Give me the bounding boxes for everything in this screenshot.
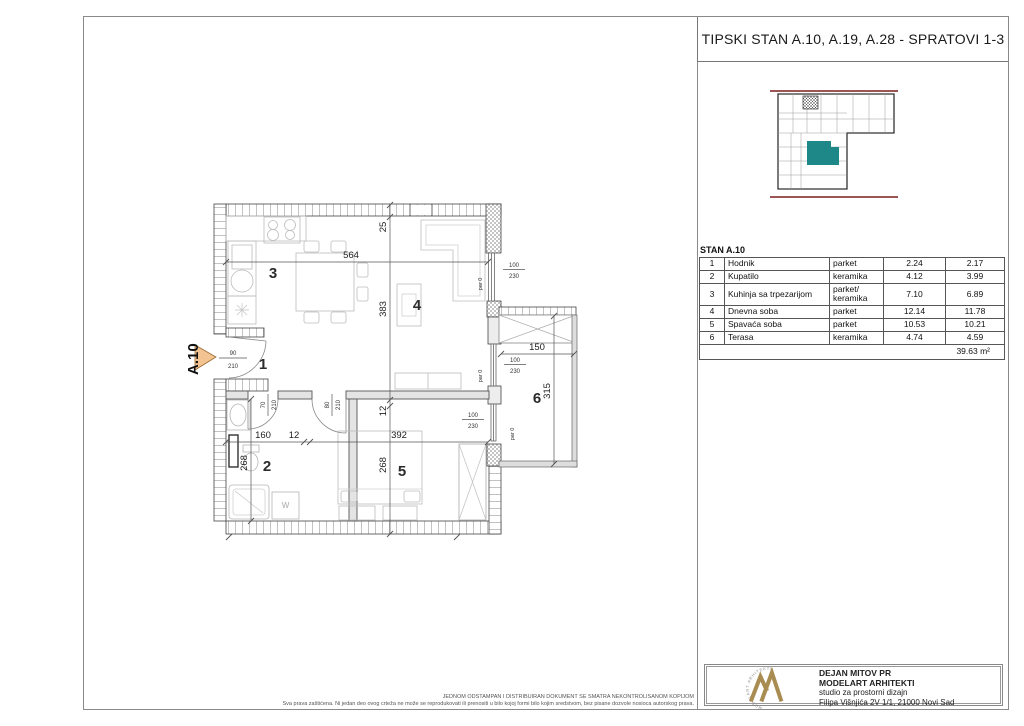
- room-area2: 6.89: [946, 284, 1005, 306]
- table-row: 2 Kupatilo keramika 4.12 3.99: [700, 271, 1005, 284]
- svg-text:210: 210: [228, 364, 239, 370]
- table-total-row: 39.63 m²: [700, 344, 1005, 359]
- room-name: Hodnik: [725, 258, 830, 271]
- architect-block: MODELART ARHITEKTI DEJAN MITOV PR MODELA…: [704, 664, 1003, 706]
- svg-text:par 0: par 0: [510, 428, 516, 441]
- svg-text:25: 25: [378, 222, 389, 233]
- interior-walls: [226, 391, 489, 521]
- dimension-texts: 564 160 12 392 150 25 383 12 268 268 315…: [228, 222, 553, 473]
- key-plan: [756, 81, 921, 211]
- room-area: 4.74: [884, 331, 946, 344]
- room-name: Spavaća soba: [725, 318, 830, 331]
- furniture-living: [395, 220, 485, 389]
- svg-text:230: 230: [468, 424, 479, 430]
- furniture-kitchen: [226, 216, 368, 324]
- room-num: 6: [700, 331, 725, 344]
- svg-text:315: 315: [542, 383, 553, 399]
- svg-text:268: 268: [378, 457, 389, 473]
- room-area2: 3.99: [946, 271, 1005, 284]
- room-floor: keramika: [830, 331, 884, 344]
- svg-text:383: 383: [378, 301, 389, 317]
- svg-text:150: 150: [529, 342, 545, 353]
- terrace-structure: [499, 307, 577, 467]
- areas-table: 1 Hodnik parket 2.24 2.17 2 Kupatilo ker…: [699, 257, 1005, 360]
- svg-text:90: 90: [230, 351, 237, 357]
- svg-text:par 0: par 0: [478, 278, 484, 291]
- washer-label: W: [282, 501, 290, 510]
- room-area2: 11.78: [946, 305, 1005, 318]
- room-name: Terasa: [725, 331, 830, 344]
- stair-core: [803, 96, 818, 109]
- table-row: 6 Terasa keramika 4.74 4.59: [700, 331, 1005, 344]
- room-name: Dnevna soba: [725, 305, 830, 318]
- firm-tagline: studio za prostorni dizajn: [819, 688, 955, 698]
- svg-text:268: 268: [239, 455, 250, 471]
- svg-text:210: 210: [336, 399, 342, 410]
- room-label-kitchen: 3: [269, 265, 277, 282]
- svg-text:70: 70: [261, 401, 267, 408]
- floor-plan-area: W 564 160 12 392 150: [84, 17, 698, 709]
- room-num: 4: [700, 305, 725, 318]
- room-area2: 4.59: [946, 331, 1005, 344]
- room-area: 4.12: [884, 271, 946, 284]
- svg-text:100: 100: [509, 263, 520, 269]
- disclaimer-line2: Sva prava zaštićena. Ni jedan deo ovog c…: [84, 701, 694, 708]
- firm-studio: MODELART ARHITEKTI: [819, 679, 955, 689]
- svg-text:100: 100: [510, 358, 521, 364]
- room-num: 5: [700, 318, 725, 331]
- room-label-living: 4: [413, 297, 422, 314]
- room-num: 3: [700, 284, 725, 306]
- disclaimer-line1: JEDNOM ODSTAMPAN I DISTRIBUIRAN DOKUMENT…: [84, 694, 694, 701]
- room-floor: parket: [830, 305, 884, 318]
- sheet-frame: W 564 160 12 392 150: [83, 16, 1009, 710]
- room-area: 2.24: [884, 258, 946, 271]
- svg-text:12: 12: [378, 406, 389, 417]
- table-title: STAN A.10: [700, 245, 745, 255]
- architect-block-inner: MODELART ARHITEKTI DEJAN MITOV PR MODELA…: [706, 666, 1001, 704]
- svg-text:100: 100: [468, 413, 479, 419]
- room-num: 2: [700, 271, 725, 284]
- firm-address: Filipa Višnjića 2V 1/1, 21000 Novi Sad: [819, 698, 955, 708]
- room-floor: parket/ keramika: [830, 284, 884, 306]
- room-num: 1: [700, 258, 725, 271]
- drawing-sheet: { "title": "TIPSKI STAN A.10, A.19, A.28…: [0, 0, 1024, 726]
- room-label-bathroom: 2: [263, 458, 271, 475]
- disclaimer: JEDNOM ODSTAMPAN I DISTRIBUIRAN DOKUMENT…: [84, 694, 694, 708]
- room-label-hallway: 1: [259, 356, 267, 373]
- table-row: 3 Kuhinja sa trpezarijom parket/ keramik…: [700, 284, 1005, 306]
- room-floor: keramika: [830, 271, 884, 284]
- svg-text:564: 564: [343, 250, 359, 261]
- floor-plan: W 564 160 12 392 150: [84, 17, 697, 709]
- table-row: 1 Hodnik parket 2.24 2.17: [700, 258, 1005, 271]
- total-area: 39.63 m²: [700, 344, 1005, 359]
- svg-text:12: 12: [289, 430, 300, 441]
- svg-text:210: 210: [272, 399, 278, 410]
- svg-text:230: 230: [510, 369, 521, 375]
- windows: [489, 253, 497, 441]
- room-floor: parket: [830, 258, 884, 271]
- room-area: 12.14: [884, 305, 946, 318]
- entry-marker: A.10: [185, 343, 216, 375]
- modelart-logo-icon: MODELART ARHITEKTI: [739, 666, 799, 710]
- svg-text:80: 80: [325, 401, 331, 408]
- firm-info: DEJAN MITOV PR MODELART ARHITEKTI studio…: [819, 669, 955, 707]
- room-area: 10.53: [884, 318, 946, 331]
- room-floor: parket: [830, 318, 884, 331]
- room-area: 7.10: [884, 284, 946, 306]
- svg-text:392: 392: [391, 430, 407, 441]
- table-row: 5 Spavaća soba parket 10.53 10.21: [700, 318, 1005, 331]
- room-label-terrace: 6: [533, 390, 541, 407]
- svg-text:160: 160: [255, 430, 271, 441]
- entry-unit-label: A.10: [185, 343, 202, 375]
- room-area2: 2.17: [946, 258, 1005, 271]
- table-row: 4 Dnevna soba parket 12.14 11.78: [700, 305, 1005, 318]
- room-area2: 10.21: [946, 318, 1005, 331]
- title-box: TIPSKI STAN A.10, A.19, A.28 - SPRATOVI …: [697, 17, 1008, 62]
- svg-text:230: 230: [509, 274, 520, 280]
- room-label-bedroom: 5: [398, 463, 406, 480]
- svg-text:par 0: par 0: [478, 370, 484, 383]
- room-name: Kuhinja sa trpezarijom: [725, 284, 830, 306]
- sheet-title: TIPSKI STAN A.10, A.19, A.28 - SPRATOVI …: [702, 31, 1005, 47]
- furniture-bedroom: [338, 431, 486, 520]
- room-name: Kupatilo: [725, 271, 830, 284]
